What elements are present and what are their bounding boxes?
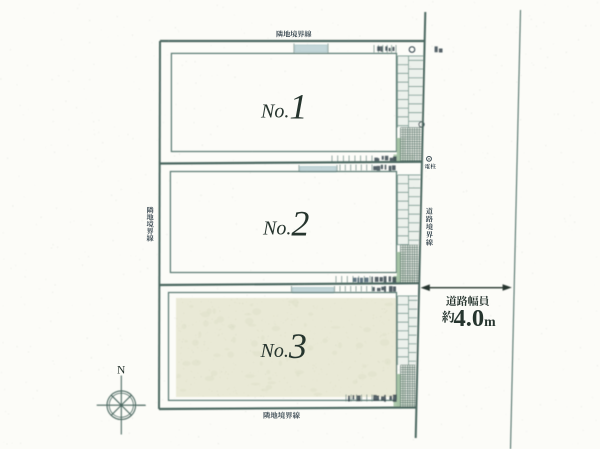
svg-text:N: N xyxy=(117,365,126,377)
svg-text:No.2: No.2 xyxy=(262,204,309,244)
svg-text:No.1: No.1 xyxy=(260,87,307,127)
svg-text:4.0m: 4.0m xyxy=(454,305,497,332)
